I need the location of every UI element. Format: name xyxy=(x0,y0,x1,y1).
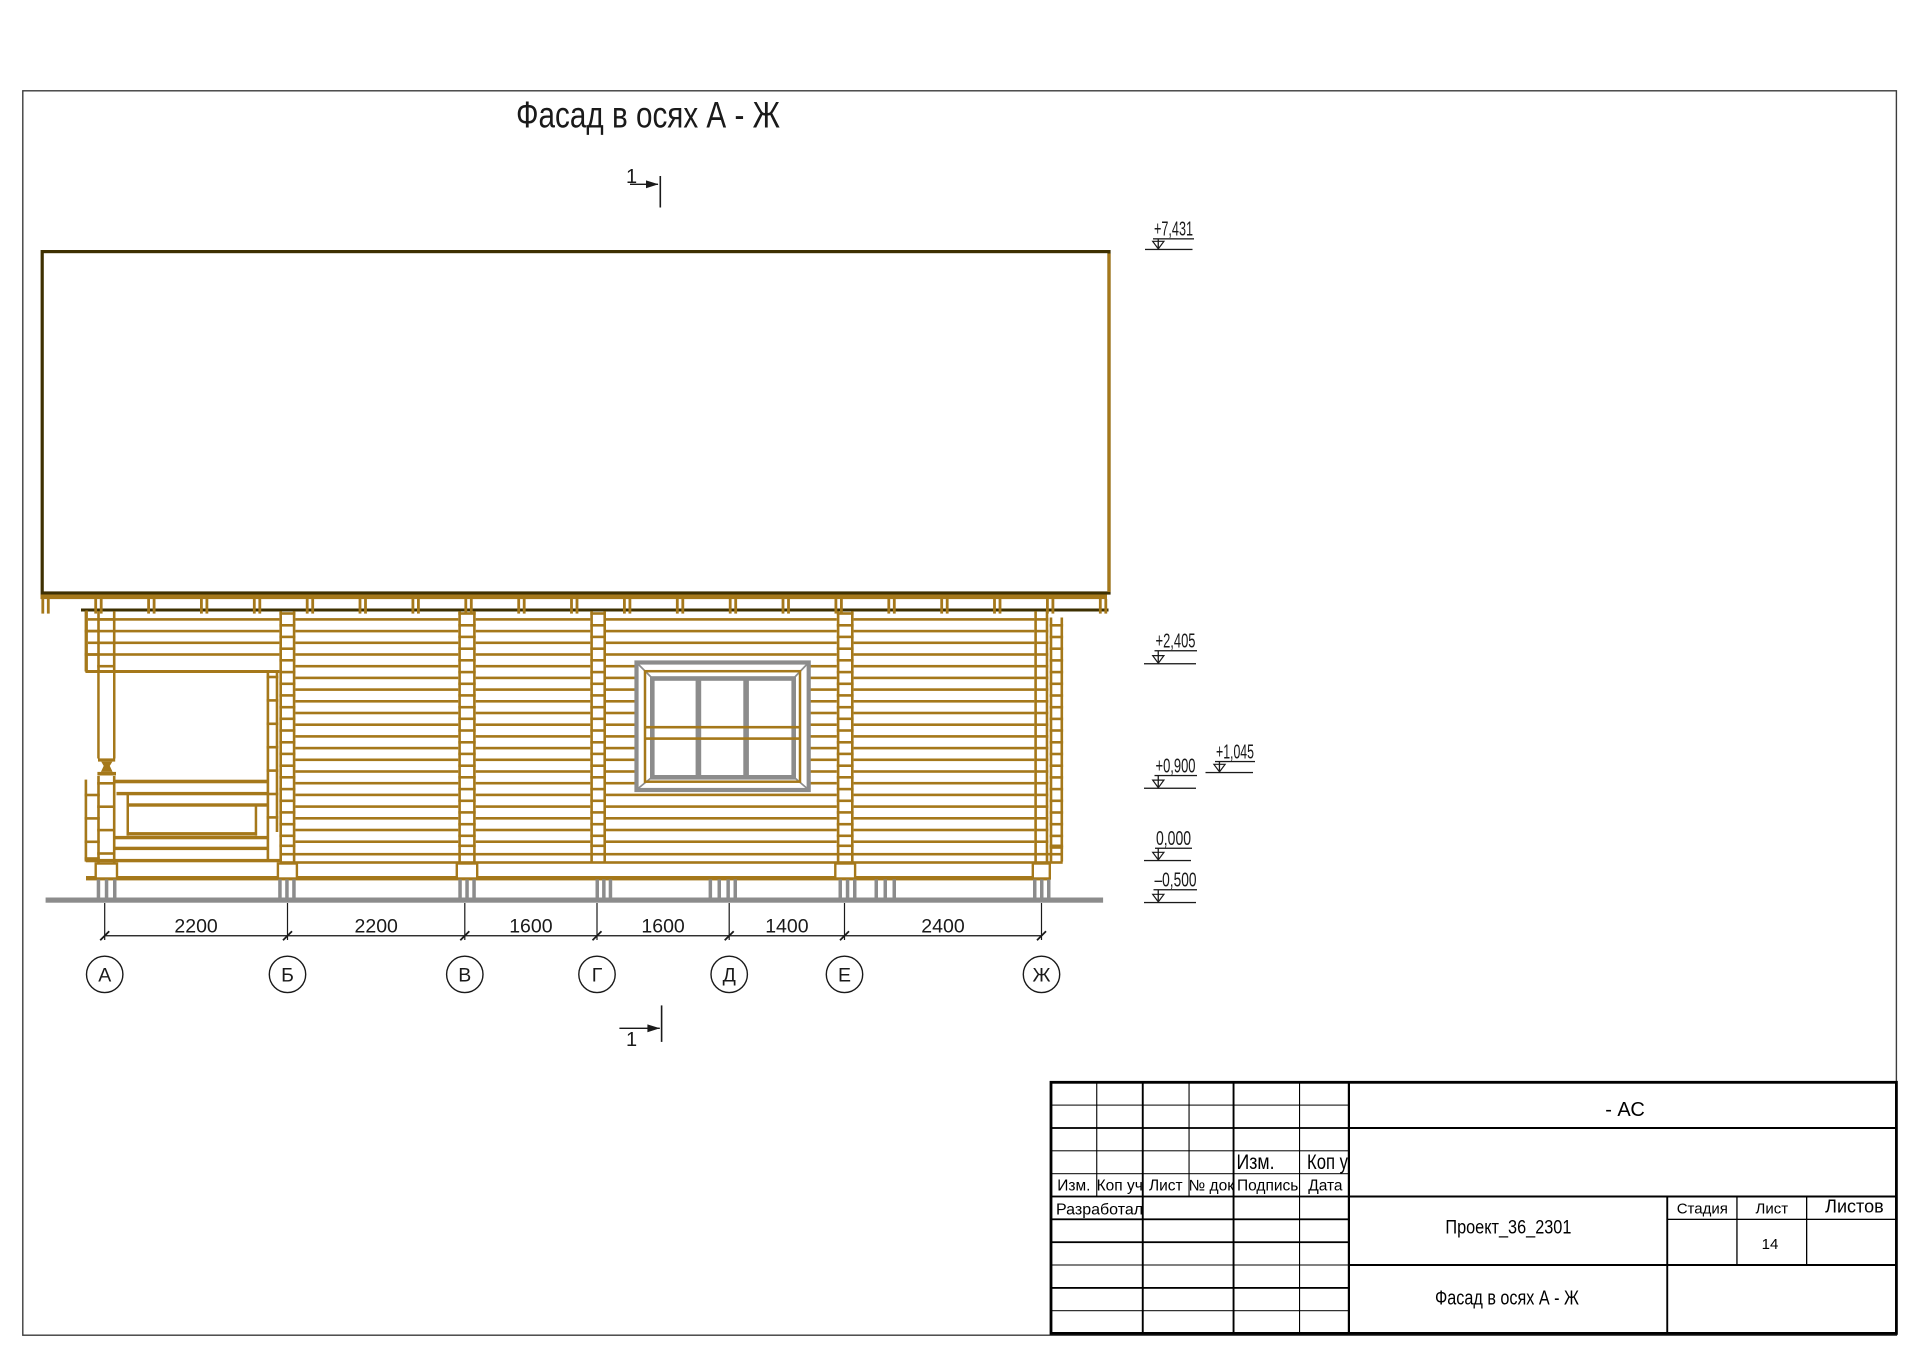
svg-text:А: А xyxy=(98,964,111,986)
svg-text:+2,405: +2,405 xyxy=(1156,631,1196,653)
svg-text:–0,500: –0,500 xyxy=(1155,870,1197,892)
svg-text:Лист: Лист xyxy=(1756,1201,1789,1218)
svg-text:Дата: Дата xyxy=(1308,1178,1343,1195)
svg-text:Лист: Лист xyxy=(1149,1178,1183,1195)
svg-text:Фасад в осях А - Ж: Фасад в осях А - Ж xyxy=(1435,1288,1579,1310)
svg-text:2200: 2200 xyxy=(174,916,218,938)
svg-text:14: 14 xyxy=(1762,1236,1779,1253)
svg-text:+1,045: +1,045 xyxy=(1216,741,1254,763)
svg-text:Листов: Листов xyxy=(1825,1197,1883,1217)
svg-text:1600: 1600 xyxy=(509,916,553,938)
svg-text:Изм.: Изм. xyxy=(1057,1178,1090,1195)
svg-text:№ док: № док xyxy=(1189,1178,1235,1195)
svg-text:1: 1 xyxy=(626,166,637,188)
svg-text:Разработал: Разработал xyxy=(1056,1202,1143,1219)
svg-text:Ж: Ж xyxy=(1032,964,1050,986)
svg-text:Д: Д xyxy=(723,964,736,986)
svg-text:2200: 2200 xyxy=(355,916,399,938)
svg-text:1400: 1400 xyxy=(765,916,809,938)
svg-text:Б: Б xyxy=(281,964,294,986)
svg-text:- АС: - АС xyxy=(1605,1099,1645,1121)
svg-text:1600: 1600 xyxy=(641,916,685,938)
svg-text:Коп уч: Коп уч xyxy=(1097,1178,1143,1195)
svg-text:2400: 2400 xyxy=(921,916,965,938)
svg-text:+7,431: +7,431 xyxy=(1154,219,1193,241)
svg-text:1: 1 xyxy=(626,1029,637,1051)
svg-text:Коп у: Коп у xyxy=(1307,1151,1348,1174)
svg-text:Фасад в осях А - Ж: Фасад в осях А - Ж xyxy=(516,95,780,136)
svg-text:Е: Е xyxy=(838,964,851,986)
svg-text:Изм.: Изм. xyxy=(1237,1151,1275,1174)
svg-text:Г: Г xyxy=(592,964,603,986)
svg-text:Подпись: Подпись xyxy=(1237,1178,1298,1195)
svg-text:В: В xyxy=(458,964,471,986)
svg-text:+0,900: +0,900 xyxy=(1156,755,1196,777)
svg-text:Проект_36_2301: Проект_36_2301 xyxy=(1445,1217,1571,1239)
svg-text:Стадия: Стадия xyxy=(1677,1201,1728,1218)
svg-text:0,000: 0,000 xyxy=(1156,828,1191,850)
